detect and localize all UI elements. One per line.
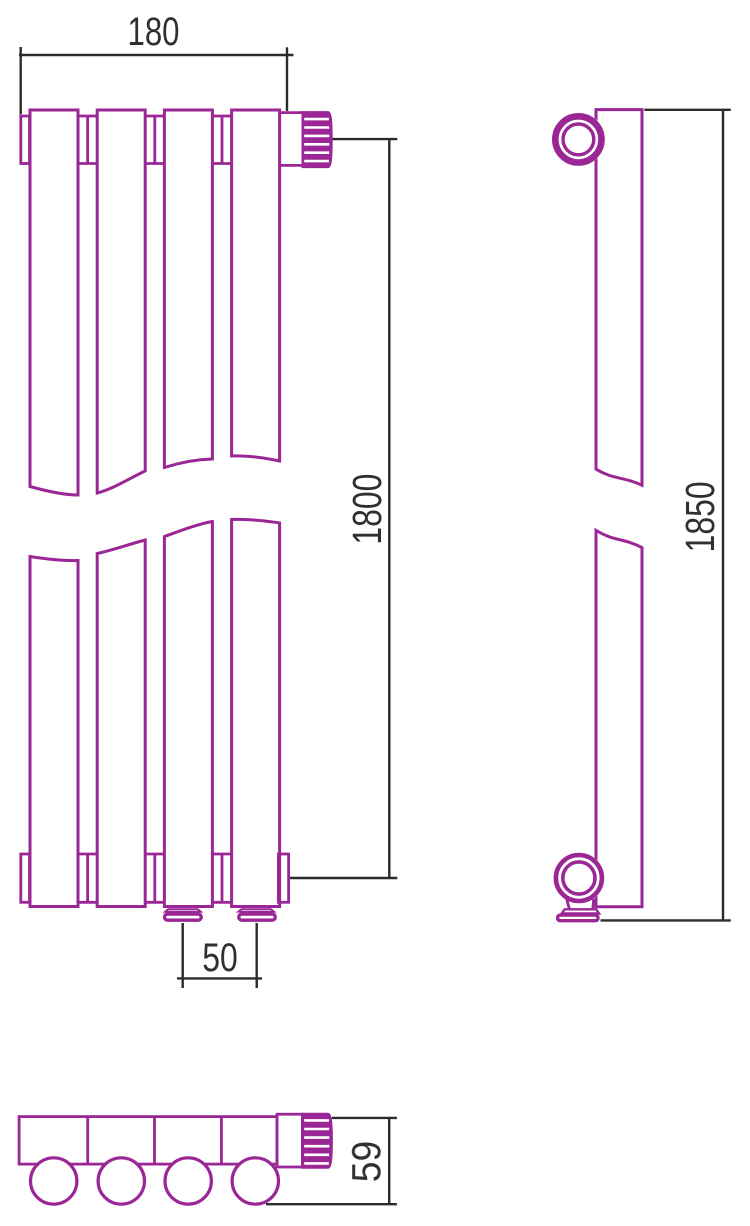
svg-text:1850: 1850 bbox=[677, 481, 723, 552]
svg-text:59: 59 bbox=[343, 1141, 389, 1183]
svg-text:50: 50 bbox=[202, 936, 238, 980]
svg-text:1800: 1800 bbox=[344, 474, 390, 545]
svg-text:180: 180 bbox=[128, 10, 180, 54]
